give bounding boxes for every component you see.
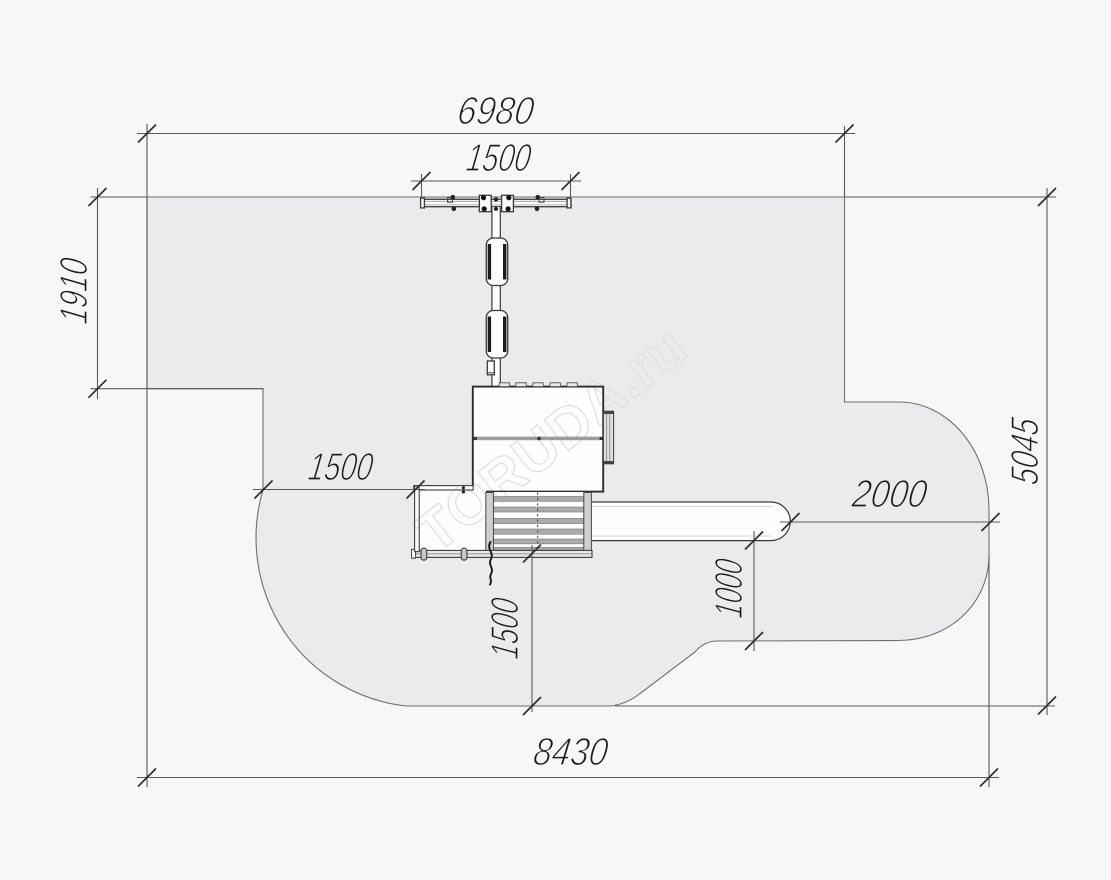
svg-text:1500: 1500 [306,446,376,489]
svg-text:8430: 8430 [531,731,611,774]
svg-text:1500: 1500 [484,595,527,661]
svg-text:5045: 5045 [1004,415,1047,487]
svg-text:1000: 1000 [708,556,751,620]
svg-text:6980: 6980 [455,90,537,133]
svg-text:1500: 1500 [464,137,534,180]
svg-text:2000: 2000 [849,473,930,516]
svg-text:1910: 1910 [53,255,96,326]
